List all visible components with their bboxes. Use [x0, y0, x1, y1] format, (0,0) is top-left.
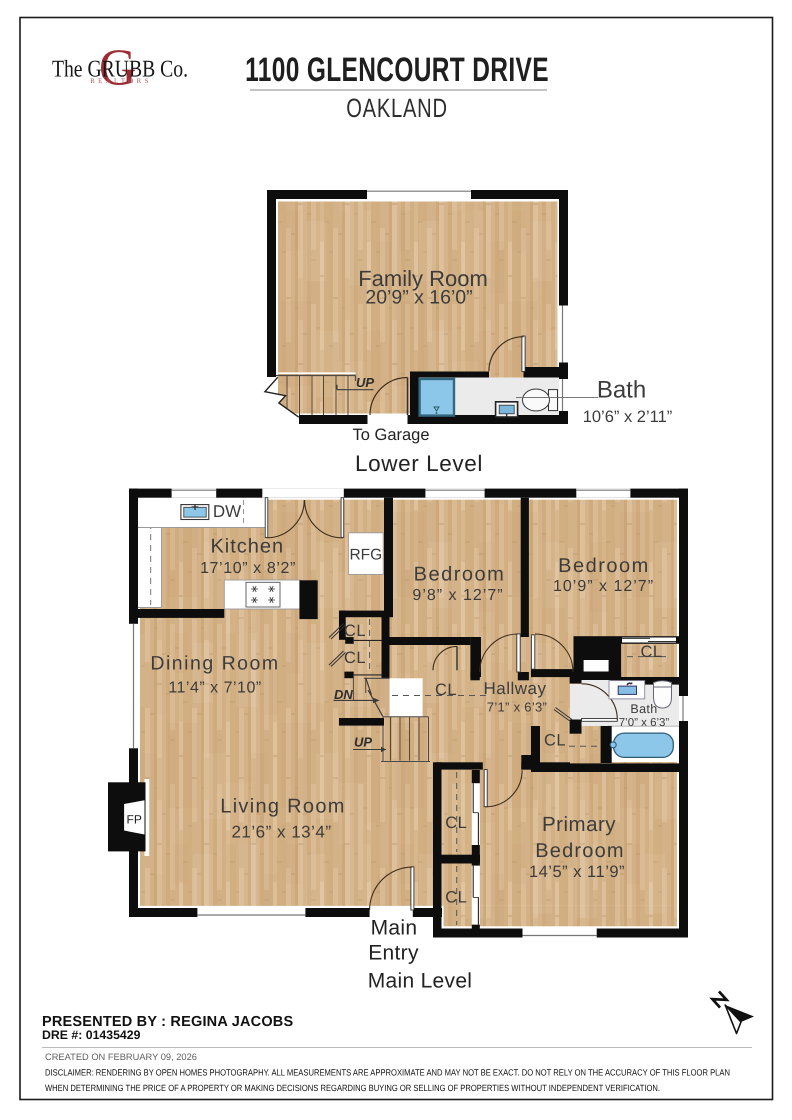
- svg-text:17’10” x 8’2”: 17’10” x 8’2”: [200, 560, 296, 577]
- svg-text:FP: FP: [127, 813, 142, 827]
- svg-text:To Garage: To Garage: [352, 426, 429, 444]
- svg-text:21’6” x 13’4”: 21’6” x 13’4”: [231, 823, 331, 842]
- svg-text:Primary: Primary: [542, 813, 616, 836]
- svg-text:Main: Main: [371, 917, 418, 940]
- svg-text:Entry: Entry: [368, 942, 419, 965]
- svg-text:CL: CL: [344, 622, 366, 640]
- svg-text:CL: CL: [435, 681, 457, 699]
- svg-text:RFG: RFG: [349, 547, 382, 564]
- svg-text:REALTORS: REALTORS: [90, 78, 152, 85]
- svg-text:Main Level: Main Level: [368, 970, 473, 993]
- svg-text:Living Room: Living Room: [220, 796, 345, 818]
- svg-text:7’1” x 6’3”: 7’1” x 6’3”: [487, 700, 547, 715]
- svg-text:Bath: Bath: [597, 377, 646, 404]
- svg-text:9’8” x 12’7”: 9’8” x 12’7”: [412, 587, 503, 604]
- svg-text:20’9” x 16’0”: 20’9” x 16’0”: [365, 287, 472, 309]
- svg-text:7’0” x 6’3”: 7’0” x 6’3”: [619, 717, 670, 729]
- svg-text:Bedroom: Bedroom: [558, 555, 650, 577]
- svg-text:DISCLAIMER: RENDERING BY OPEN: DISCLAIMER: RENDERING BY OPEN HOMES PHOT…: [45, 1068, 730, 1078]
- svg-text:OAKLAND: OAKLAND: [346, 93, 448, 123]
- svg-text:DN: DN: [334, 687, 353, 702]
- svg-text:CL: CL: [544, 732, 566, 750]
- svg-text:DW: DW: [213, 502, 241, 521]
- svg-text:DRE #: 01435429: DRE #: 01435429: [42, 1028, 141, 1042]
- svg-text:CL: CL: [344, 649, 366, 667]
- svg-text:Bedroom: Bedroom: [414, 564, 506, 586]
- svg-text:CL: CL: [640, 643, 662, 661]
- svg-text:11’4” x 7’10”: 11’4” x 7’10”: [168, 680, 261, 697]
- svg-text:CL: CL: [445, 814, 467, 832]
- svg-text:Lower Level: Lower Level: [355, 451, 483, 476]
- svg-text:Bath: Bath: [630, 702, 657, 716]
- svg-text:WHEN DETERMINING THE PRICE OF: WHEN DETERMINING THE PRICE OF A PROPERTY…: [45, 1083, 660, 1093]
- svg-text:Bedroom: Bedroom: [535, 840, 625, 862]
- svg-text:CREATED ON FEBRUARY 09, 2026: CREATED ON FEBRUARY 09, 2026: [45, 1052, 197, 1062]
- svg-text:UP: UP: [354, 735, 372, 750]
- svg-text:UP: UP: [356, 375, 374, 390]
- svg-text:CL: CL: [445, 889, 467, 907]
- svg-text:Hallway: Hallway: [483, 679, 546, 698]
- svg-text:Kitchen: Kitchen: [210, 536, 284, 558]
- svg-text:1100 GLENCOURT DRIVE: 1100 GLENCOURT DRIVE: [245, 51, 549, 89]
- svg-text:10’6” x 2’11”: 10’6” x 2’11”: [583, 408, 673, 426]
- svg-text:Dining Room: Dining Room: [150, 653, 279, 675]
- svg-text:10’9” x 12’7”: 10’9” x 12’7”: [553, 578, 654, 595]
- svg-text:14’5” x 11’9”: 14’5” x 11’9”: [529, 863, 625, 881]
